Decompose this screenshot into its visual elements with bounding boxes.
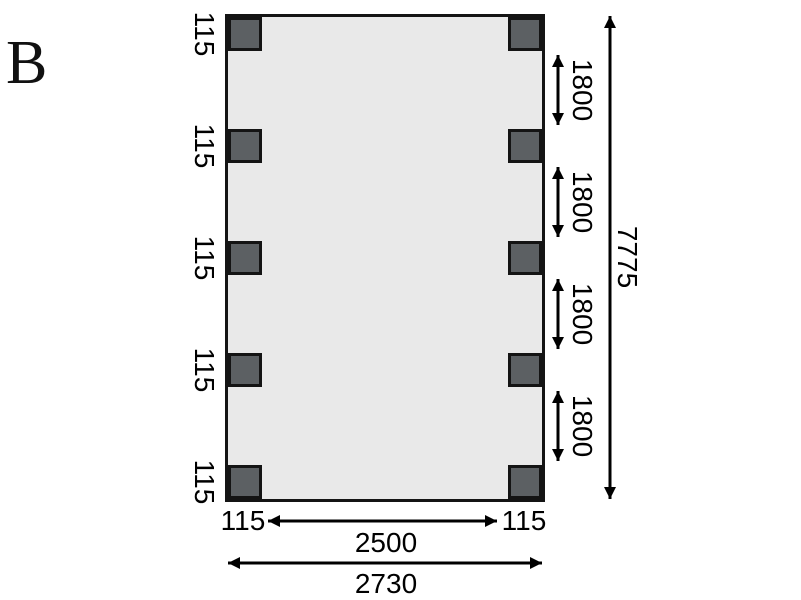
- dim-label-spacing-2: 1800: [568, 171, 596, 233]
- post-left-2: [228, 129, 262, 163]
- dim-label-bottom-left-post: 115: [221, 507, 266, 535]
- post-left-3: [228, 241, 262, 275]
- dim-label-total-height: 7775: [613, 226, 641, 288]
- post-right-4: [508, 353, 542, 387]
- dim-label-bottom-right-post: 115: [502, 507, 547, 535]
- dim-label-spacing-4: 1800: [568, 395, 596, 457]
- post-right-2: [508, 129, 542, 163]
- dim-label-post-width-3: 115: [190, 236, 218, 281]
- dim-label-spacing-3: 1800: [568, 283, 596, 345]
- post-right-1: [508, 17, 542, 51]
- dim-label-post-width-2: 115: [190, 124, 218, 169]
- post-right-5: [508, 465, 542, 499]
- post-left-1: [228, 17, 262, 51]
- dim-label-total-width: 2730: [355, 570, 417, 598]
- plan-diagram: B 115 115 115 115 115 1800 1800 1800 180…: [0, 0, 801, 600]
- dim-label-post-width-5: 115: [190, 460, 218, 505]
- post-left-5: [228, 465, 262, 499]
- dim-label-inner-width: 2500: [355, 529, 417, 557]
- dim-label-post-width-4: 115: [190, 348, 218, 393]
- dim-label-spacing-1: 1800: [568, 59, 596, 121]
- figure-label: B: [6, 32, 47, 94]
- plan-outline: [225, 14, 545, 502]
- dim-label-post-width-1: 115: [190, 12, 218, 57]
- post-right-3: [508, 241, 542, 275]
- post-left-4: [228, 353, 262, 387]
